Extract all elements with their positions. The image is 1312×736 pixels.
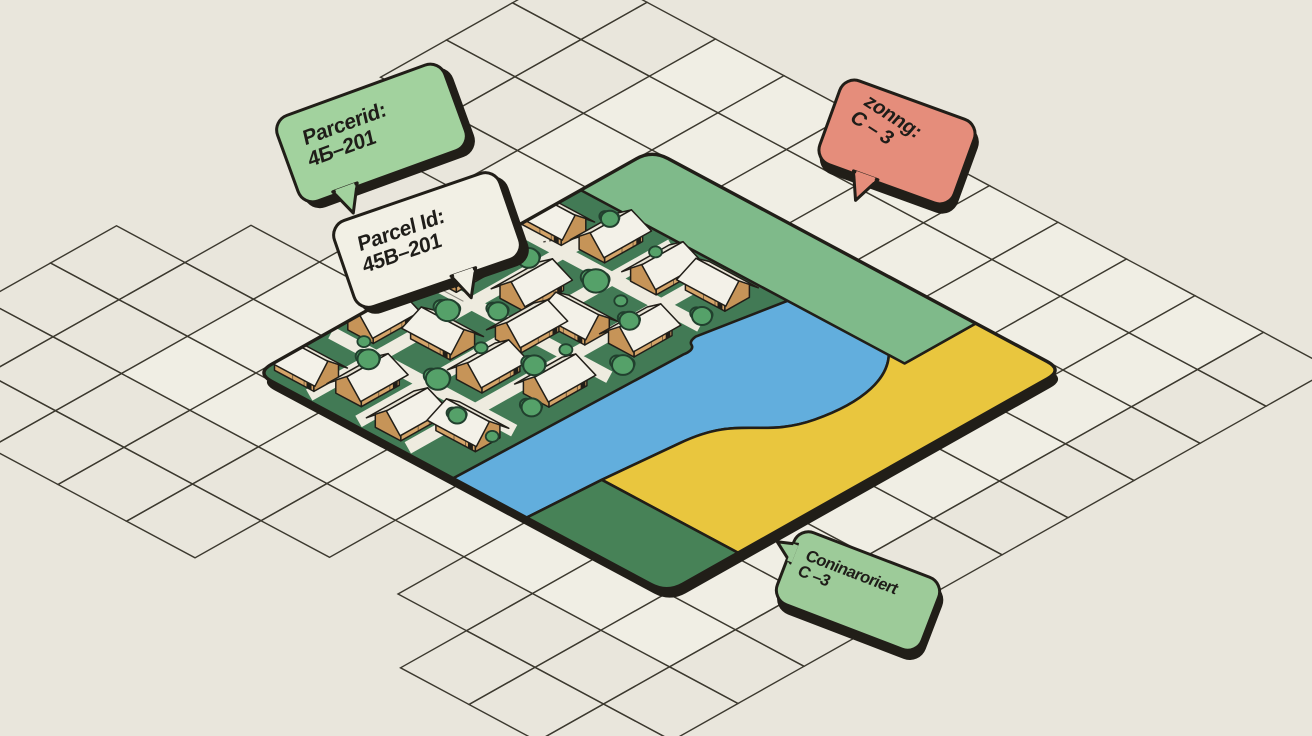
tree <box>599 211 619 227</box>
tree <box>356 349 380 369</box>
map-canvas <box>0 0 1312 736</box>
tree <box>486 302 508 320</box>
tree <box>520 398 542 416</box>
tree <box>618 312 640 330</box>
bush <box>475 342 488 353</box>
tree <box>521 355 545 375</box>
bush <box>649 246 662 257</box>
bush <box>559 344 572 355</box>
commercial-zone-label-text: Coninaroriert C –3 <box>794 548 900 613</box>
bush <box>614 295 627 306</box>
tree <box>610 355 634 375</box>
tree <box>447 407 467 423</box>
bush <box>357 336 370 347</box>
parcel-id-callout-white-text: Parcel Id: 45B–201 <box>356 205 451 278</box>
bush <box>486 431 499 442</box>
tree <box>690 307 712 325</box>
isometric-zoning-map-illustration: Parcerid: 4Б–201 Parcel Id: 45B–201 zonn… <box>0 0 1312 736</box>
zoning-callout-red-text: zonng: C – 3 <box>845 92 926 158</box>
parcel-id-callout-green-text: Parcerid: 4Б–201 <box>301 99 393 172</box>
